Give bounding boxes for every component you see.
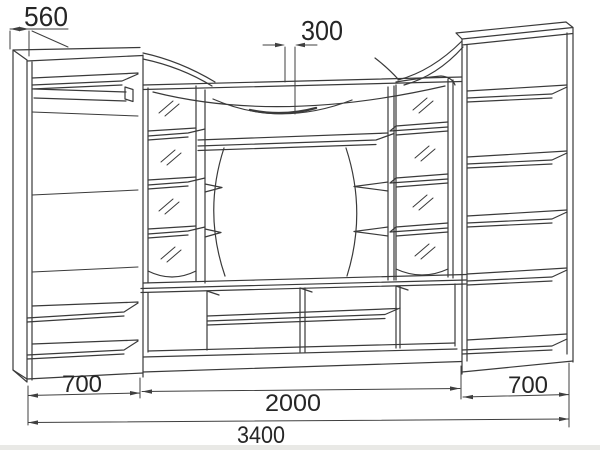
arrowhead [559, 417, 569, 421]
dimension-300: 300 [263, 15, 343, 114]
arrowhead [28, 420, 38, 424]
arrowhead [463, 395, 473, 399]
dimension-700-right: 700 [463, 363, 569, 427]
left-wardrobe [13, 48, 143, 383]
wavy-canopy-shelf [153, 86, 445, 114]
tv-niche-barrel-curves [214, 148, 357, 276]
right-shelf-cabinet [456, 22, 573, 374]
tv-stand-mid-shelf [207, 308, 400, 325]
left-wardrobe-outline [13, 48, 143, 383]
arrowhead [130, 391, 140, 395]
arrowhead [559, 392, 569, 396]
furniture-technical-drawing: 560 300 700 2000 700 3400 [0, 0, 600, 450]
arrowhead [28, 393, 38, 397]
dimension-3400-lines [28, 419, 569, 423]
dimension-700-left-label: 700 [62, 371, 102, 398]
left-wardrobe-panel-seams [32, 112, 138, 272]
dimension-560-lines [10, 29, 68, 56]
dimension-2000-label: 2000 [265, 390, 321, 417]
dimension-700-left: 700 [28, 371, 140, 425]
curved-canopy [143, 41, 463, 114]
mirror-hatch-icon-left [159, 101, 181, 262]
left-mirror-column-bottom-curve [148, 271, 196, 277]
arrowhead [10, 27, 20, 31]
image-bottom-edge [0, 445, 600, 450]
dimension-300-label: 300 [301, 15, 343, 46]
tv-niche [198, 86, 394, 280]
tv-stand-top [141, 275, 466, 293]
right-mirror-column [390, 76, 455, 280]
tv-stand-bottom [143, 343, 462, 372]
arrowhead [275, 43, 285, 47]
wall-unit-elevation: 560 300 700 2000 700 3400 [0, 0, 600, 450]
dimension-700-right-label: 700 [508, 372, 548, 399]
dimension-560-label: 560 [24, 1, 68, 32]
right-mirror-column-frame [396, 76, 455, 280]
dimension-300-lines [263, 45, 317, 114]
tv-niche-upper-shelf [198, 133, 394, 151]
tv-stand-base [141, 275, 466, 373]
clothes-rail [34, 87, 133, 102]
left-wing-curve [143, 53, 215, 86]
right-cabinet-top [456, 22, 573, 45]
right-cabinet-frame [462, 28, 573, 374]
dimension-2000: 2000 [142, 366, 461, 417]
left-wardrobe-bottom-shelves [27, 302, 138, 359]
left-wardrobe-top-shelf [32, 73, 138, 89]
right-cabinet-shelves [467, 85, 567, 285]
right-mirror-column-shelves [390, 122, 448, 236]
left-mirror-column-frame [143, 55, 205, 377]
arrowhead [450, 386, 460, 390]
tv-niche-side-shelves [205, 182, 388, 237]
right-mirror-column-bottom-curve [396, 269, 448, 275]
left-mirror-column [143, 55, 205, 377]
right-cabinet-bottom [462, 334, 573, 372]
arrowhead [142, 389, 152, 393]
dimension-560: 560 [10, 1, 68, 56]
